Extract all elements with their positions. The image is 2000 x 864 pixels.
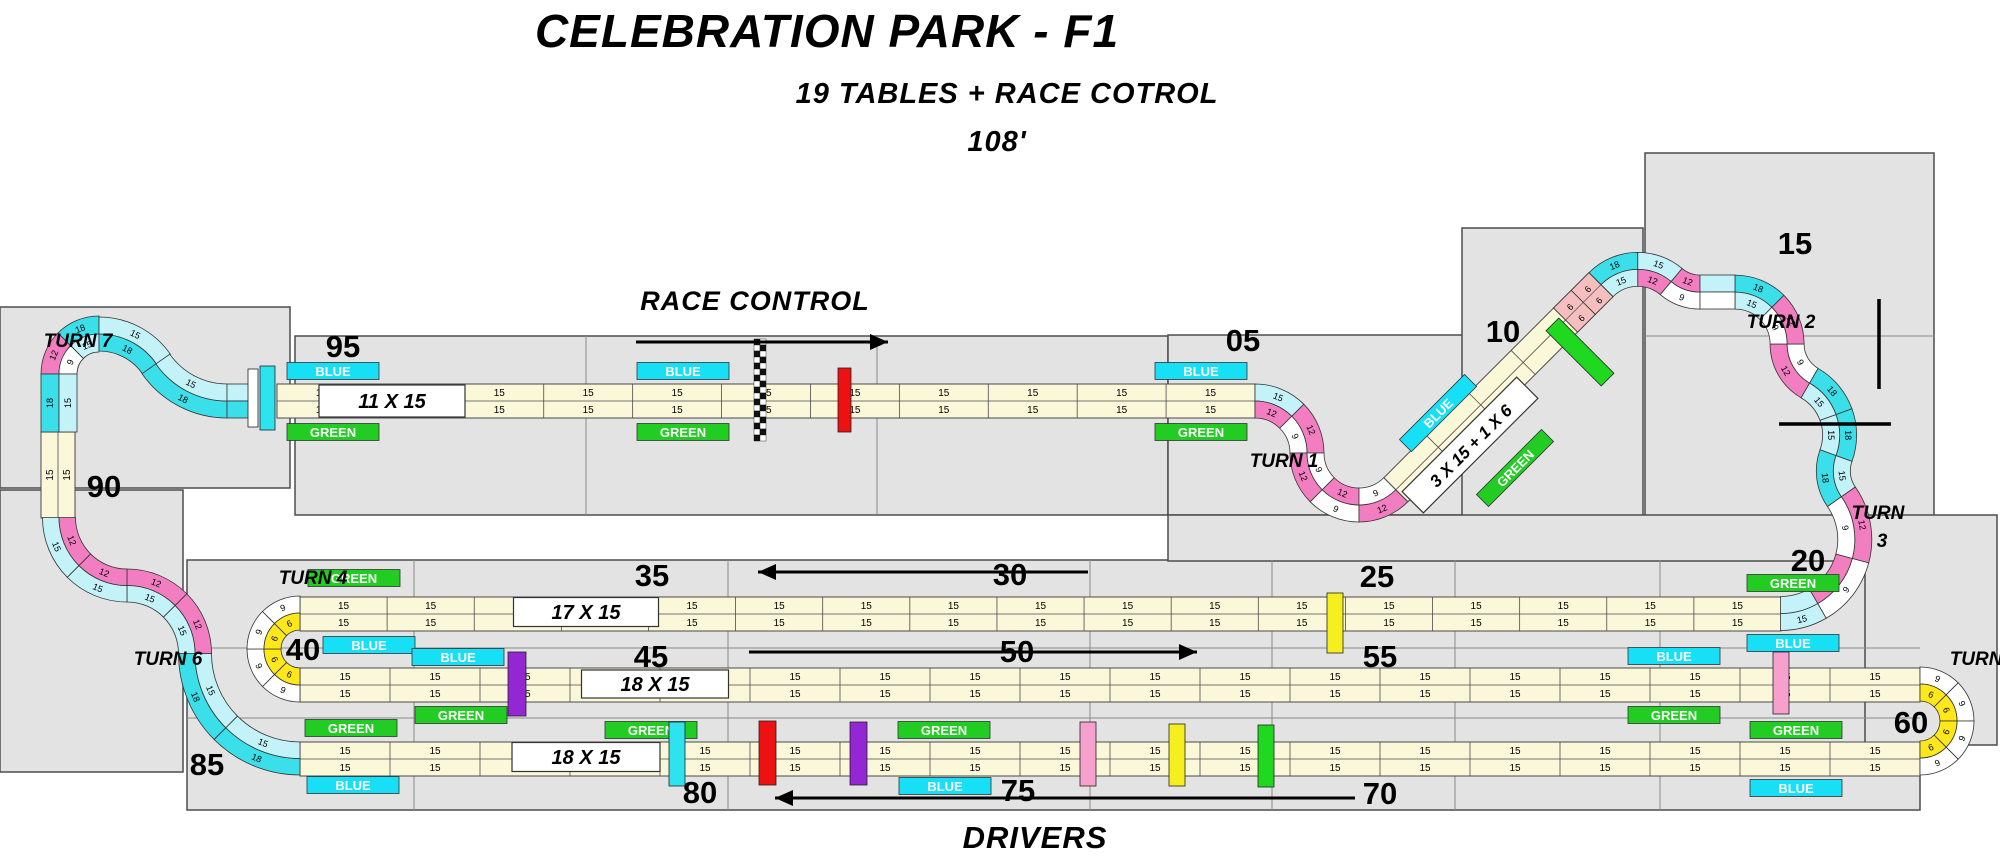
start-finish-checker <box>754 423 760 429</box>
chip-label: GREEN <box>628 723 674 738</box>
piece-label: 15 <box>1779 763 1791 774</box>
piece-label: 15 <box>789 763 801 774</box>
piece-label: 15 <box>1732 618 1744 629</box>
marker-bar-group <box>1169 724 1185 786</box>
curve-piece <box>227 401 249 418</box>
start-finish-checker <box>754 369 760 375</box>
piece-label: 15 <box>699 746 711 757</box>
piece-label: 15 <box>1869 689 1881 700</box>
marker-bar <box>1169 724 1185 786</box>
piece-label: 15 <box>1239 672 1251 683</box>
piece-label: 15 <box>969 746 981 757</box>
station-number: 10 <box>1486 314 1520 349</box>
piece-label: 15 <box>1329 763 1341 774</box>
piece-label: 15 <box>1329 689 1341 700</box>
marker-bar-group <box>1327 593 1343 653</box>
piece-label: 18 <box>45 398 55 408</box>
piece-label: 15 <box>1149 672 1161 683</box>
chip-label: BLUE <box>1656 649 1692 664</box>
station-number: 85 <box>190 747 224 782</box>
chip-label: GREEN <box>438 708 484 723</box>
table <box>295 336 1168 515</box>
marker-bar-group <box>1773 652 1789 714</box>
turn-label: TURN 6 <box>134 649 203 670</box>
chip-label: BLUE <box>665 364 701 379</box>
curve-piece <box>227 384 249 401</box>
start-finish-checker <box>760 399 766 405</box>
station-number: 35 <box>635 558 669 593</box>
piece-label: 15 <box>1149 746 1161 757</box>
size-box-label: 17 X 15 <box>552 602 622 624</box>
color-chip-group: GREEN <box>1750 722 1842 739</box>
chip-label: GREEN <box>328 721 374 736</box>
piece-label: 15 <box>1869 672 1881 683</box>
color-chip-group: BLUE <box>323 637 415 654</box>
chip-label: BLUE <box>1775 636 1811 651</box>
piece-label: 15 <box>1239 689 1251 700</box>
piece-label: 15 <box>789 672 801 683</box>
piece-label: 15 <box>1599 689 1611 700</box>
piece-label: 15 <box>1599 763 1611 774</box>
station-number: 60 <box>1894 705 1928 740</box>
table <box>1168 515 1865 561</box>
start-finish-checker <box>754 435 760 441</box>
station-number: 50 <box>1000 634 1034 669</box>
marker-bar-group <box>1258 725 1274 787</box>
piece-label: 15 <box>1035 618 1047 629</box>
piece-label: 15 <box>62 469 73 481</box>
piece-label: 15 <box>1122 601 1134 612</box>
station-number: 40 <box>286 632 320 667</box>
size-box-label: 18 X 15 <box>621 674 691 696</box>
station-number: 45 <box>634 639 668 674</box>
piece-label: 15 <box>338 618 350 629</box>
piece-label: 18 <box>1820 472 1831 483</box>
piece-label: 15 <box>339 689 351 700</box>
start-finish-checker <box>760 345 766 351</box>
start-finish-checker <box>754 393 760 399</box>
station-number: 75 <box>1001 773 1035 808</box>
piece-label: 15 <box>1027 388 1039 399</box>
turn-label: TURN 5 <box>1950 649 2000 670</box>
color-chip-group: GREEN <box>898 722 990 739</box>
chip-label: GREEN <box>1770 576 1816 591</box>
start-finish-checker <box>760 387 766 393</box>
piece-label: 15 <box>879 689 891 700</box>
piece-label: 15 <box>1239 763 1251 774</box>
piece-label: 15 <box>969 763 981 774</box>
piece-label: 15 <box>861 618 873 629</box>
piece-label: 15 <box>1509 672 1521 683</box>
piece-label: 15 <box>338 601 350 612</box>
piece-label: 15 <box>938 388 950 399</box>
marker-bar-group <box>1080 722 1096 786</box>
start-finish-checker <box>760 435 766 441</box>
piece-label: 15 <box>774 618 786 629</box>
piece-label: 15 <box>969 689 981 700</box>
piece-label: 15 <box>789 746 801 757</box>
piece-label: 15 <box>583 388 595 399</box>
color-chip-group: BLUE <box>1628 648 1720 665</box>
start-finish-checker <box>760 423 766 429</box>
piece-label: 15 <box>1116 388 1128 399</box>
piece-label: 15 <box>494 388 506 399</box>
piece-label: 15 <box>1296 601 1308 612</box>
turn-label: TURN 4 <box>279 568 348 589</box>
piece-label: 15 <box>1027 405 1039 416</box>
piece-label: 15 <box>1209 601 1221 612</box>
piece-label: 15 <box>1329 672 1341 683</box>
station-number: 80 <box>683 775 717 810</box>
piece-label: 15 <box>1509 763 1521 774</box>
chip-label: GREEN <box>1178 425 1224 440</box>
station-number: 95 <box>326 329 360 364</box>
table <box>0 490 183 772</box>
piece-label: 15 <box>1689 763 1701 774</box>
chip-label: BLUE <box>335 778 371 793</box>
marker-bar <box>248 369 258 427</box>
start-finish-checker <box>754 351 760 357</box>
marker-bar <box>1080 722 1096 786</box>
piece-label: 15 <box>1059 763 1071 774</box>
piece-label: 15 <box>339 746 351 757</box>
start-finish-checker <box>754 417 760 423</box>
piece-label: 15 <box>774 601 786 612</box>
piece-label: 15 <box>879 672 891 683</box>
piece-label: 15 <box>1059 689 1071 700</box>
marker-bar-group <box>508 652 526 716</box>
size-box-group: 11 X 15 <box>319 385 465 417</box>
piece-label: 15 <box>1419 746 1431 757</box>
piece-label: 15 <box>1599 746 1611 757</box>
piece-label: 15 <box>1122 618 1134 629</box>
piece-label: 15 <box>1689 672 1701 683</box>
piece-label: 15 <box>1296 618 1308 629</box>
turn-label: TURN 1 <box>1250 451 1319 472</box>
piece-label: 15 <box>969 672 981 683</box>
piece-label: 15 <box>879 746 891 757</box>
piece-label: 15 <box>1059 672 1071 683</box>
color-chip-group: BLUE <box>1747 635 1839 652</box>
color-chip-group: BLUE <box>637 363 729 380</box>
start-finish-checker <box>760 375 766 381</box>
start-finish-checker <box>760 405 766 411</box>
piece-label: 15 <box>45 469 56 481</box>
color-chip-group: BLUE <box>899 778 991 795</box>
start-finish-checker <box>760 393 766 399</box>
piece-label: 15 <box>1509 689 1521 700</box>
piece-label: 15 <box>1383 601 1395 612</box>
race-control-label: RACE CONTROL <box>555 286 955 317</box>
curve-piece <box>1700 292 1735 309</box>
piece-label: 15 <box>1329 746 1341 757</box>
chip-label: GREEN <box>1651 708 1697 723</box>
start-finish-checker <box>754 429 760 435</box>
chip-label: BLUE <box>351 638 387 653</box>
start-finish-checker <box>760 363 766 369</box>
color-chip-group: GREEN <box>637 424 729 441</box>
marker-bar-group <box>260 366 275 430</box>
size-box-label: 18 X 15 <box>552 747 622 769</box>
turn-label: TURN 7 <box>44 331 114 352</box>
color-chip-group: BLUE <box>1155 363 1247 380</box>
station-number: 15 <box>1778 226 1812 261</box>
chip-label: BLUE <box>440 650 476 665</box>
size-box-group: 18 X 15 <box>512 743 660 772</box>
piece-label: 15 <box>686 601 698 612</box>
size-box-label: 11 X 15 <box>358 391 426 413</box>
piece-label: 15 <box>938 405 950 416</box>
marker-bar <box>759 721 776 785</box>
marker-bar <box>1258 725 1274 787</box>
start-finish-checker <box>760 381 766 387</box>
station-number: 70 <box>1363 776 1397 811</box>
turn-label: TURN 2 <box>1747 312 1816 333</box>
piece-label: 15 <box>1209 618 1221 629</box>
chip-label: BLUE <box>1778 781 1814 796</box>
piece-label: 15 <box>1205 405 1217 416</box>
piece-label: 15 <box>672 388 684 399</box>
marker-bar <box>838 368 851 432</box>
start-finish-checker <box>754 387 760 393</box>
piece-label: 15 <box>1869 746 1881 757</box>
color-chip-group: GREEN <box>287 424 379 441</box>
start-finish-checker <box>760 351 766 357</box>
start-finish-checker <box>760 411 766 417</box>
station-number: 90 <box>87 469 121 504</box>
station-number: 55 <box>1363 639 1397 674</box>
page-title: CELEBRATION PARK - F1 <box>327 4 1327 58</box>
chip-label: BLUE <box>315 364 351 379</box>
piece-label: 15 <box>672 405 684 416</box>
start-finish-checker <box>754 363 760 369</box>
marker-bar <box>508 652 526 716</box>
piece-label: 15 <box>1205 388 1217 399</box>
start-finish-checker <box>760 357 766 363</box>
turn-label: TURN <box>1852 503 1906 524</box>
piece-label: 15 <box>1149 763 1161 774</box>
chip-label: GREEN <box>1773 723 1819 738</box>
subtitle: 19 TABLES + RACE COTROL <box>507 78 1507 111</box>
track-length-label: 108' <box>497 126 1497 159</box>
color-chip-group: BLUE <box>412 649 504 666</box>
color-chip-group: BLUE <box>287 363 379 380</box>
start-finish-checker <box>754 411 760 417</box>
size-box-group: 18 X 15 <box>582 670 729 698</box>
piece-label: 15 <box>425 618 437 629</box>
piece-label: 15 <box>1826 430 1836 440</box>
piece-label: 15 <box>1035 601 1047 612</box>
station-number: 20 <box>1791 543 1825 578</box>
marker-bar-group <box>850 722 867 785</box>
piece-label: 15 <box>429 763 441 774</box>
piece-label: 15 <box>1419 672 1431 683</box>
piece-label: 15 <box>1471 601 1483 612</box>
piece-label: 15 <box>948 601 960 612</box>
start-finish-checker <box>760 417 766 423</box>
curve-piece <box>1700 275 1735 292</box>
piece-label: 15 <box>1419 763 1431 774</box>
piece-label: 15 <box>1419 689 1431 700</box>
start-finish-checker <box>754 345 760 351</box>
piece-label: 15 <box>1779 746 1791 757</box>
chip-label: BLUE <box>1183 364 1219 379</box>
station-number: 05 <box>1226 323 1260 358</box>
station-number: 25 <box>1360 559 1394 594</box>
marker-bar-group <box>759 721 776 785</box>
piece-label: 15 <box>1059 746 1071 757</box>
piece-label: 15 <box>1689 746 1701 757</box>
piece-label: 15 <box>339 763 351 774</box>
piece-label: 15 <box>1558 618 1570 629</box>
piece-label: 15 <box>1837 470 1848 481</box>
start-finish-checker <box>754 357 760 363</box>
marker-bar <box>850 722 867 785</box>
piece-label: 15 <box>1558 601 1570 612</box>
color-chip-group: GREEN <box>1628 707 1720 724</box>
piece-label: 15 <box>1732 601 1744 612</box>
color-chip-group: BLUE <box>1750 780 1842 797</box>
station-number: 30 <box>993 557 1027 592</box>
piece-label: 15 <box>1383 618 1395 629</box>
piece-label: 15 <box>1869 763 1881 774</box>
piece-label: 15 <box>948 618 960 629</box>
piece-label: 15 <box>861 601 873 612</box>
piece-label: 18 <box>1843 430 1853 440</box>
color-chip-group: GREEN <box>305 720 397 737</box>
color-chip-group: BLUE <box>307 777 399 794</box>
marker-bar <box>1773 652 1789 714</box>
piece-label: 15 <box>1599 672 1611 683</box>
piece-label: 15 <box>1149 689 1161 700</box>
marker-bar-group <box>838 368 851 432</box>
start-finish-checker <box>754 381 760 387</box>
piece-label: 15 <box>789 689 801 700</box>
piece-label: 15 <box>494 405 506 416</box>
start-finish-checker <box>760 369 766 375</box>
marker-bar <box>1327 593 1343 653</box>
marker-bar-group <box>248 369 258 427</box>
piece-label: 15 <box>686 618 698 629</box>
start-finish-checker <box>754 399 760 405</box>
color-chip-group: GREEN <box>415 707 507 724</box>
piece-label: 15 <box>583 405 595 416</box>
piece-label: 15 <box>63 398 73 408</box>
size-box-group: 17 X 15 <box>514 598 659 627</box>
piece-label: 15 <box>879 763 891 774</box>
chip-label: GREEN <box>310 425 356 440</box>
marker-bar <box>260 366 275 430</box>
piece-label: 15 <box>699 763 711 774</box>
color-chip-group: GREEN <box>1155 424 1247 441</box>
piece-label: 15 <box>429 746 441 757</box>
piece-label: 15 <box>1509 746 1521 757</box>
page-root: 1515151515151515151515151515151515151515… <box>0 0 2000 864</box>
turn-label: 3 <box>1877 531 1888 552</box>
piece-label: 15 <box>1689 689 1701 700</box>
drivers-label: DRIVERS <box>835 820 1235 856</box>
piece-label: 15 <box>1645 601 1657 612</box>
piece-label: 15 <box>425 601 437 612</box>
piece-label: 15 <box>1116 405 1128 416</box>
piece-label: 15 <box>1471 618 1483 629</box>
start-finish-checker <box>754 375 760 381</box>
start-finish-checker <box>754 405 760 411</box>
start-finish-checker <box>760 429 766 435</box>
chip-label: GREEN <box>921 723 967 738</box>
chip-label: BLUE <box>927 779 963 794</box>
chip-label: GREEN <box>660 425 706 440</box>
piece-label: 15 <box>339 672 351 683</box>
piece-label: 15 <box>1239 746 1251 757</box>
piece-label: 15 <box>429 672 441 683</box>
piece-label: 15 <box>1645 618 1657 629</box>
piece-label: 15 <box>429 689 441 700</box>
